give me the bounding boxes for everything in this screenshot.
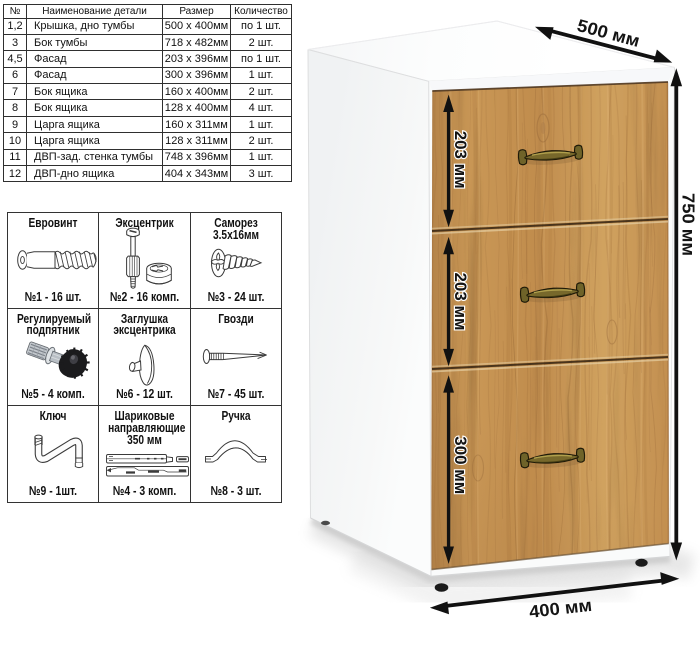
svg-text:203 мм: 203 мм — [451, 273, 469, 331]
svg-text:750 мм: 750 мм — [679, 193, 699, 256]
svg-text:300 мм: 300 мм — [451, 436, 469, 494]
svg-text:203 мм: 203 мм — [451, 131, 469, 189]
